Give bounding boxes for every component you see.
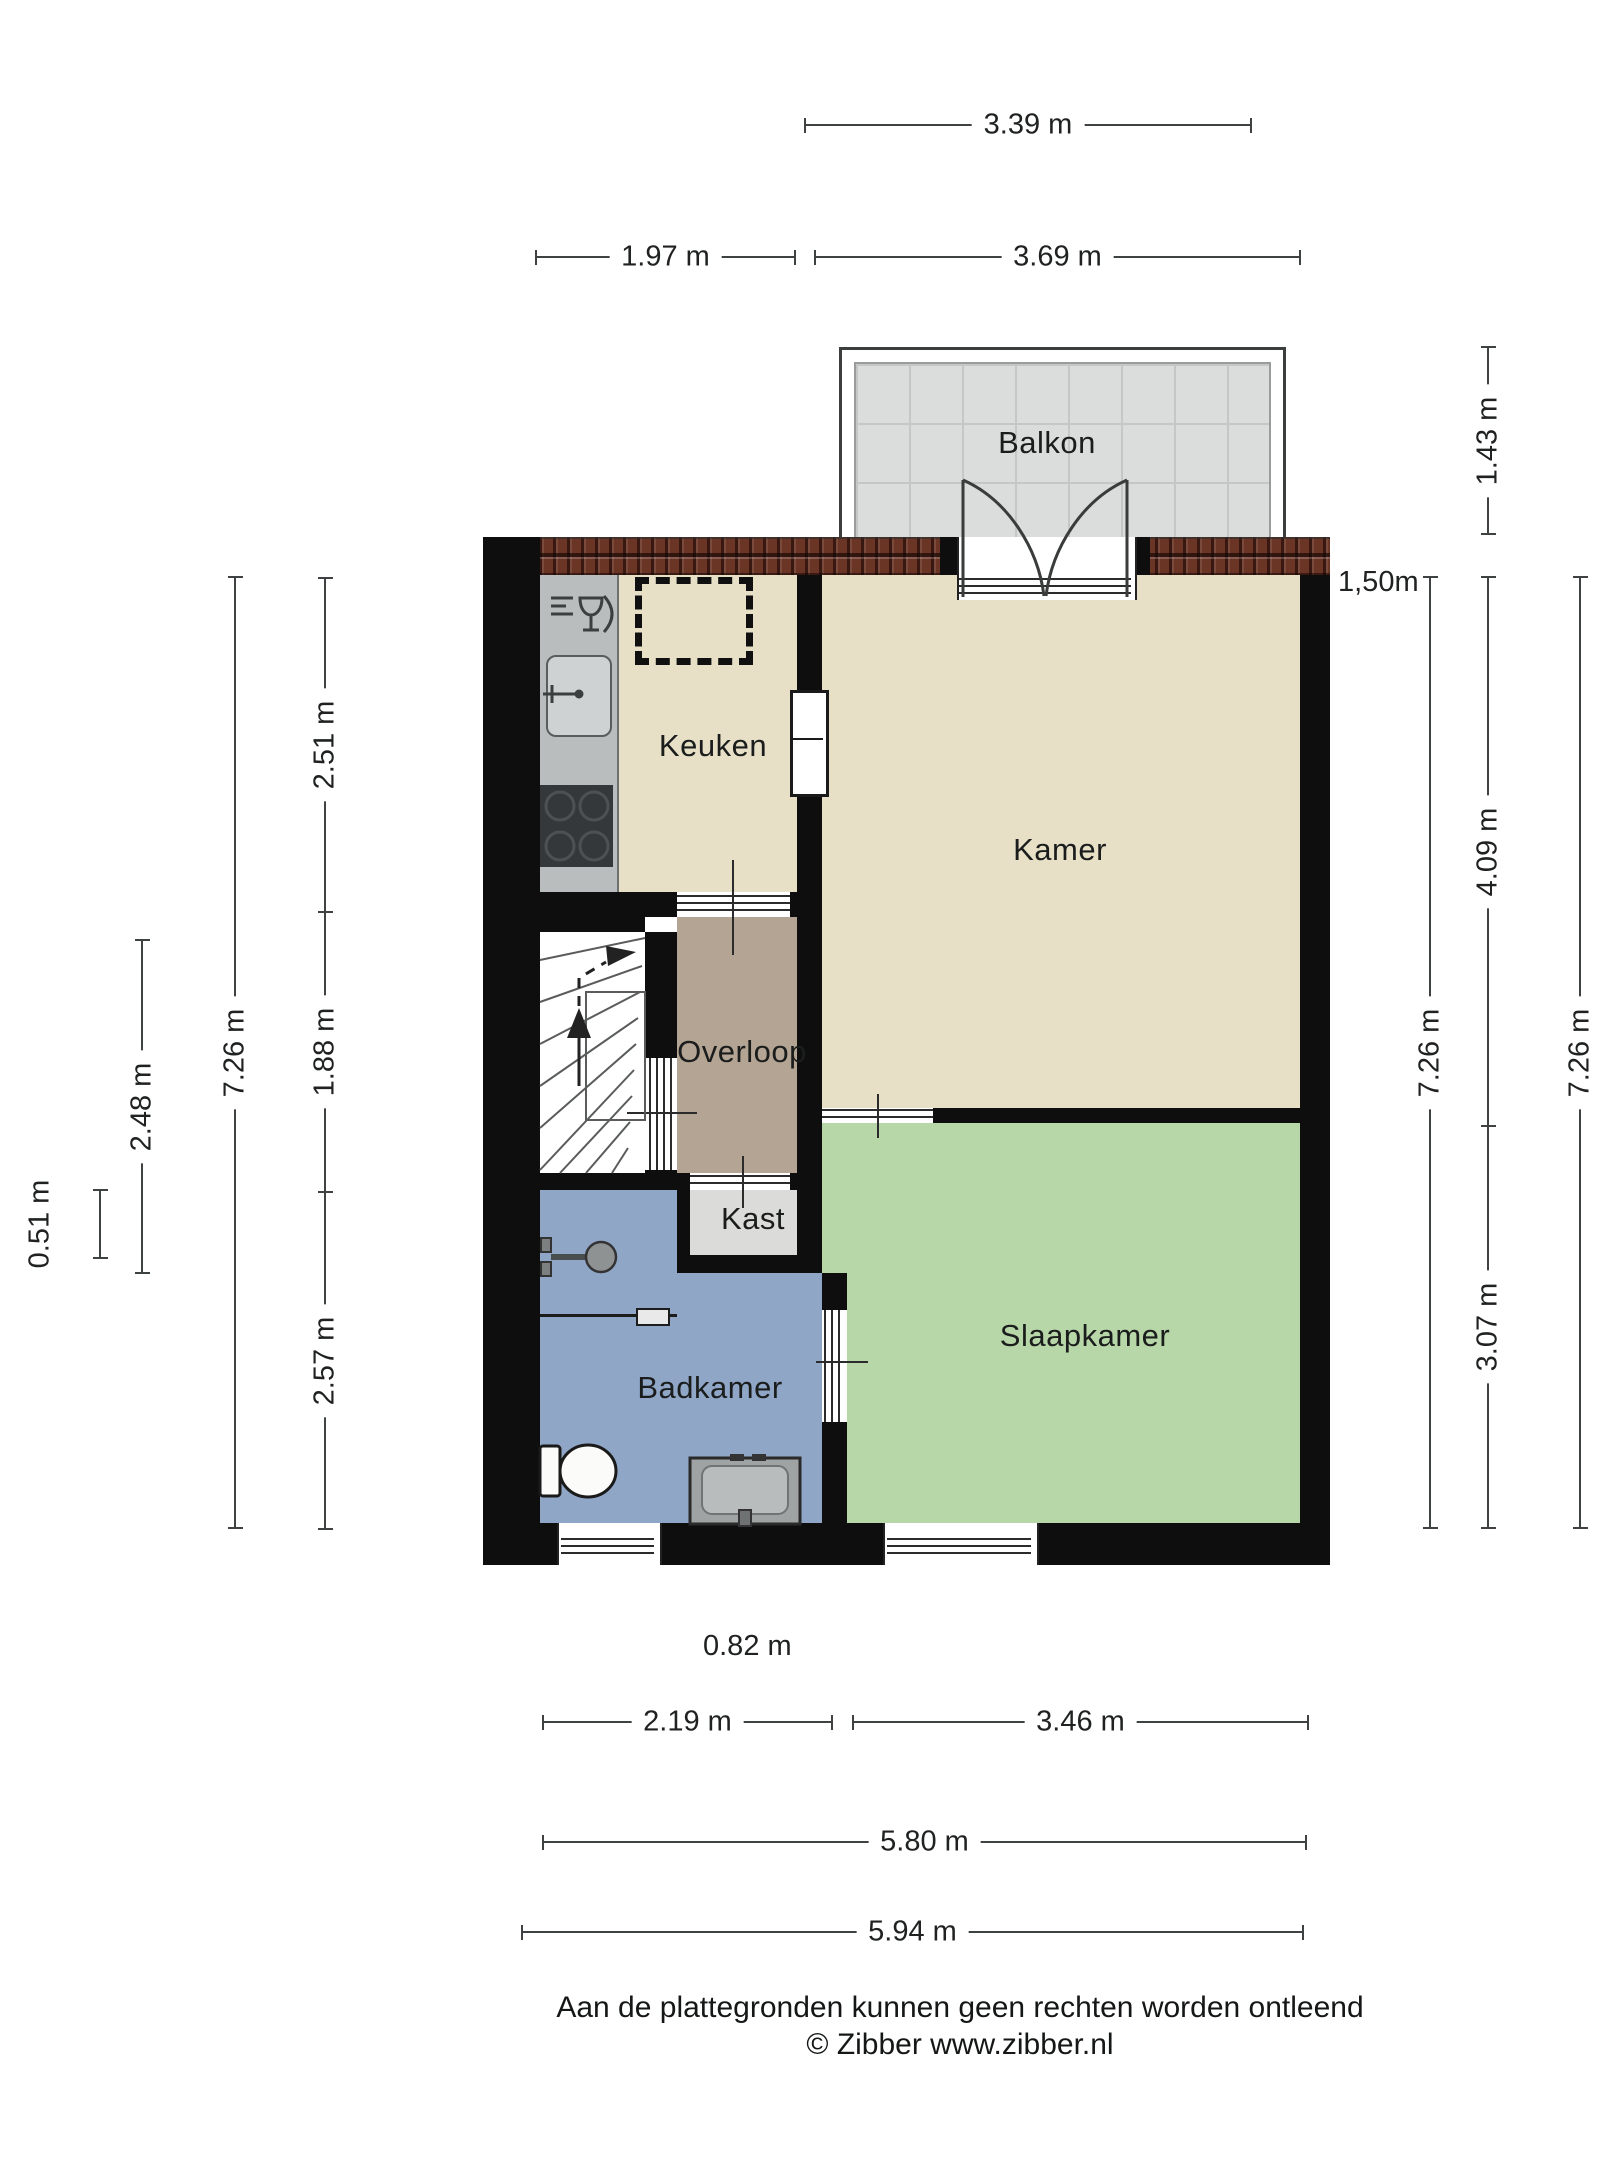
wall-keuken-kamer-top (797, 575, 822, 693)
dim-bottom-inner: 5.80 m (543, 1841, 1306, 1843)
footer-disclaimer: Aan de plattegronden kunnen geen rechten… (310, 1991, 1610, 2025)
slaapkamer-window-panes (887, 1538, 1031, 1554)
height-marker-label: 1,50m (1338, 566, 1419, 599)
dormer-dashed-outline (635, 577, 753, 665)
dim-slaapkamer-depth: 3.07 m (1487, 1126, 1489, 1528)
dim-keuken-width: 1.97 m (536, 256, 795, 258)
wall-kamer-slaapkamer (933, 1108, 1300, 1123)
room-label-balkon: Balkon (998, 425, 1096, 461)
dim-stairs-column: 2.48 m (141, 940, 143, 1273)
dim-kamer-depth: 4.09 m (1487, 577, 1489, 1126)
wall-overloop-right (797, 915, 822, 1273)
roof-tile-strip (483, 537, 1330, 575)
room-label-kamer: Kamer (1013, 832, 1107, 868)
room-label-kast: Kast (721, 1201, 785, 1237)
keuken-overloop-door-swing (732, 860, 734, 955)
kitchen-stove (540, 785, 613, 867)
dim-left-total: 7.26 m (234, 577, 236, 1528)
room-label-overloop: Overloop (677, 1034, 807, 1070)
room-label-keuken: Keuken (659, 728, 767, 764)
dim-kast-depth-label: 0.51 m (24, 1180, 57, 1269)
shower-partition-handle (636, 1308, 670, 1326)
stairs-door-swing (627, 1112, 697, 1114)
wall-badkamer-top (540, 1173, 677, 1190)
footer-copyright: © Zibber www.zibber.nl (310, 2028, 1610, 2062)
room-label-badkamer: Badkamer (637, 1370, 782, 1406)
wall-keuken-bottom-left (540, 892, 677, 917)
footer: Aan de plattegronden kunnen geen rechten… (310, 1988, 1610, 2065)
dim-right-total-outer: 7.26 m (1579, 577, 1581, 1528)
kitchen-sink (546, 655, 612, 737)
wall-left (483, 537, 540, 1565)
dim-keuken-depth: 2.51 m (324, 578, 326, 912)
dim-balcony-depth: 1.43 m (1487, 347, 1489, 534)
wall-right (1300, 575, 1330, 1565)
room-label-slaapkamer: Slaapkamer (1000, 1318, 1170, 1354)
badkamer-window-panes (561, 1538, 654, 1554)
dim-balcony-width: 3.39 m (805, 124, 1251, 126)
kast-door-leaf (690, 1175, 790, 1189)
dim-bottom-outer: 5.94 m (522, 1931, 1303, 1933)
dim-slaapkamer-width: 3.46 m (853, 1721, 1308, 1723)
balcony-door-threshold-lines (959, 578, 1131, 594)
keuken-kamer-door (790, 690, 829, 797)
badkamer-slaapkamer-door-swing (816, 1361, 868, 1363)
wall-stair-header (540, 915, 645, 932)
dim-kast-depth-line (99, 1190, 101, 1258)
floorplan: Balkon (0, 0, 1620, 2160)
dim-badkamer-width: 2.19 m (543, 1721, 832, 1723)
slaapkamer-door-swing (877, 1094, 879, 1138)
badkamer-slaapkamer-door-leaf (824, 1310, 845, 1422)
dim-overloop-depth: 1.88 m (324, 912, 326, 1192)
stairwell-floor (540, 932, 645, 1173)
keuken-kamer-door-mullion (793, 738, 823, 740)
dim-badkamer-depth: 2.57 m (324, 1192, 326, 1529)
wall-keuken-bottom-right (790, 892, 822, 917)
dim-kamer-width: 3.69 m (815, 256, 1300, 258)
wall-kast-bottom (677, 1255, 822, 1273)
badkamer-floor-left (540, 1190, 677, 1523)
dim-right-total-inner: 7.26 m (1429, 577, 1431, 1528)
dim-free-width-label: 0.82 m (703, 1630, 792, 1663)
stairs-door-leaf (649, 1058, 673, 1170)
wall-balconydoor-stub-left (940, 537, 957, 575)
